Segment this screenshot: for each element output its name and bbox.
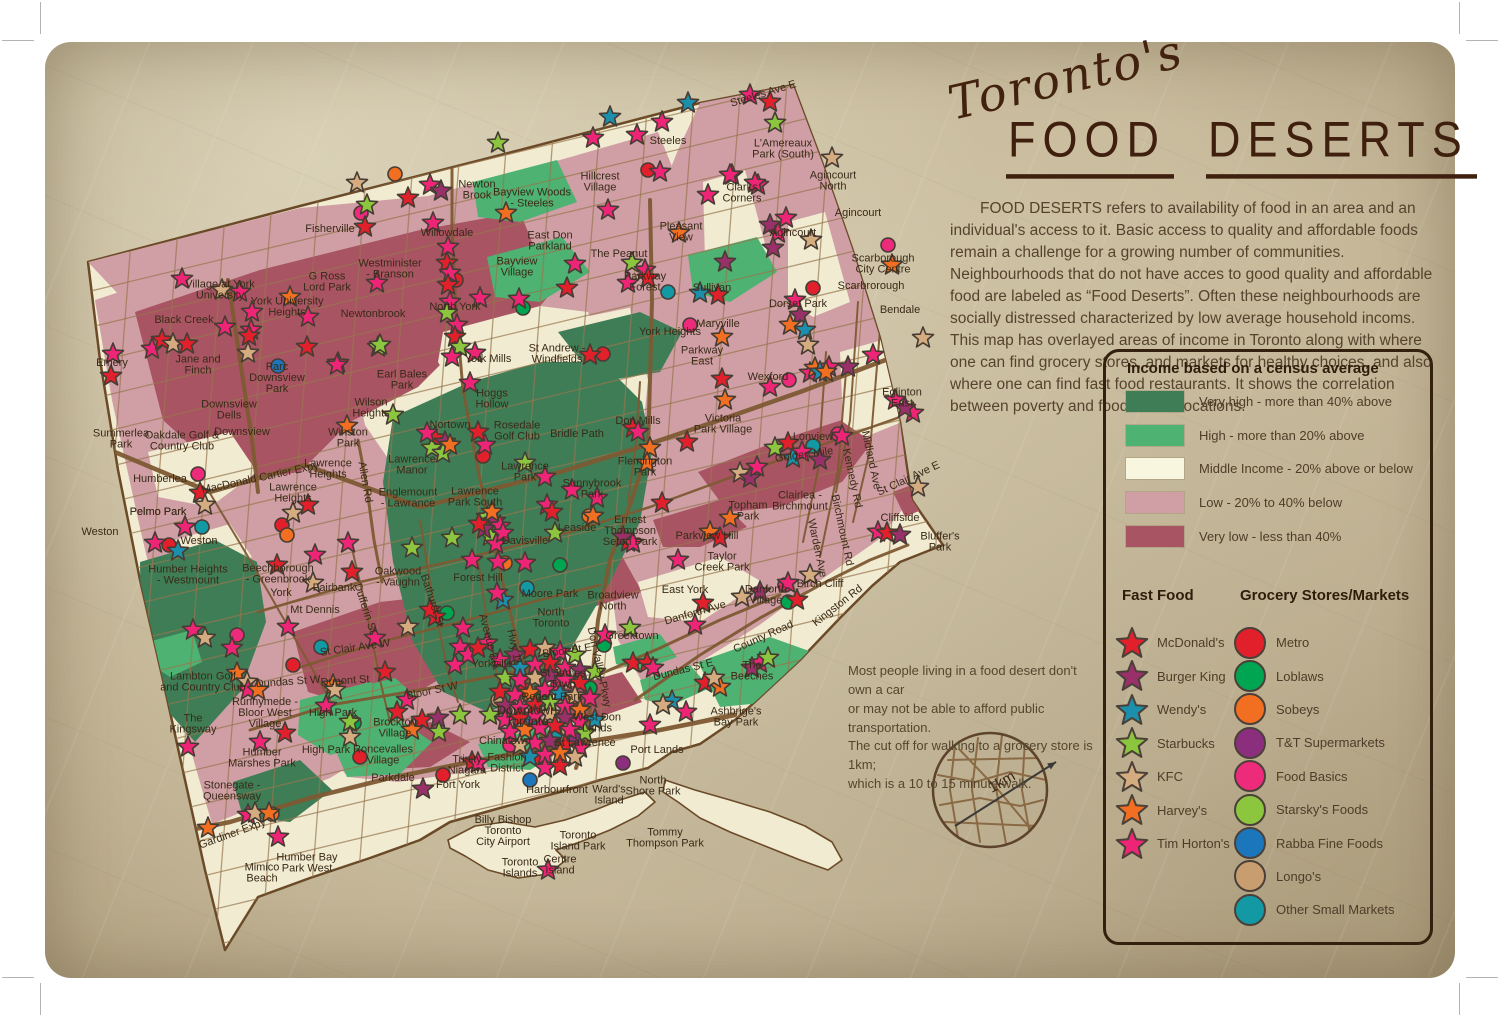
map-label: Lonview — [793, 431, 833, 443]
map-label: Lambton Golfand Country Club — [160, 671, 246, 694]
map-label: G RossLord Park — [303, 271, 351, 294]
income-legend-label: Very low - less than 40% — [1199, 529, 1341, 544]
map-label: Parkview Hill — [676, 530, 739, 542]
map-label: High Park — [302, 744, 351, 756]
income-color-swatch — [1126, 391, 1184, 412]
rabba-circle-icon — [1231, 826, 1269, 860]
map-label: Dorset Park — [769, 298, 828, 310]
grocery-legend-label: Rabba Fine Foods — [1276, 836, 1383, 851]
income-legend-item: Middle Income - 20% above or below — [1126, 452, 1413, 486]
map-label: ScarboroughCity Centre — [852, 253, 915, 276]
map-label: Oakdale Golf &Country Club — [145, 430, 220, 453]
map-label: North York — [429, 301, 481, 313]
map-label: Willowdale — [421, 227, 474, 239]
lob-circle-icon — [1231, 659, 1269, 693]
grocery-marker-sob — [388, 167, 402, 181]
fb-circle-icon — [1231, 759, 1269, 793]
map-label: Wexford — [748, 371, 789, 383]
income-color-swatch — [1126, 458, 1184, 479]
grocery-marker-osm — [661, 285, 675, 299]
fast-food-marker-kfc — [822, 147, 843, 167]
map-label: Maryville — [696, 318, 739, 330]
map-label: Black Creek — [154, 314, 214, 326]
map-label: MimicoBeach — [245, 862, 280, 885]
fast-food-legend-item: Wendy's — [1112, 693, 1230, 727]
map-label: Fisherville — [305, 223, 355, 235]
grocery-legend-label: T&T Supermarkets — [1276, 735, 1385, 750]
map-label: Fairbank — [313, 582, 356, 594]
grocery-legend-title: Grocery Stores/Markets — [1240, 587, 1409, 604]
grocery-legend-label: Sobeys — [1276, 702, 1319, 717]
map-label: WilsonHeights — [352, 397, 390, 420]
grocery-legend-item: Rabba Fine Foods — [1231, 826, 1394, 859]
map-label: RosedaleGolf Club — [494, 420, 540, 443]
grocery-marker-lob — [553, 558, 567, 572]
income-color-swatch — [1126, 425, 1184, 446]
th-star-icon — [1112, 827, 1152, 861]
poster-page: Steeles Ave ESteelesL'AmereauxPark (Sout… — [0, 0, 1500, 1017]
grocery-legend-item: Longo's — [1231, 860, 1394, 893]
income-legend-label: Middle Income - 20% above or below — [1199, 461, 1413, 476]
map-label: NewtonBrook — [458, 179, 495, 202]
map-label: Stonegate -Queensway — [203, 780, 262, 803]
map-label: Newtonbrook — [341, 308, 406, 320]
map-label: Oakwood- Vaughn — [375, 566, 421, 589]
income-legend: Very high - more than 40% aboveHigh - mo… — [1126, 385, 1413, 553]
map-label: High Park — [309, 707, 358, 719]
map-label: East York — [662, 584, 709, 596]
sb-star-icon — [1112, 726, 1152, 760]
map-label: TorontoIslands — [502, 857, 539, 880]
map-label: HillcrestVillage — [580, 171, 619, 194]
osm-circle-icon — [1231, 893, 1269, 927]
title-word-food: FOOD — [1006, 110, 1174, 178]
bk-star-icon — [1112, 659, 1152, 693]
income-legend-item: Low - 20% to 40% below — [1126, 486, 1413, 520]
map-label: Weston — [180, 535, 217, 547]
sf-circle-icon — [1231, 793, 1269, 827]
map-label: ClarksCorners — [722, 182, 762, 205]
grocery-legend-item: T&T Supermarkets — [1231, 726, 1394, 759]
map-label: Clairlea -Birchmount — [772, 490, 828, 513]
map-label: Ashbrige'sBay Park — [710, 706, 762, 729]
map-label: Harbourfront — [526, 784, 588, 796]
map-label: LawrencePark South — [448, 486, 502, 509]
mc-star-icon — [1112, 626, 1152, 660]
fast-food-legend-item: Harvey's — [1112, 794, 1230, 828]
fast-food-marker-sb — [488, 132, 509, 152]
map-label: Steeles — [650, 135, 687, 147]
grocery-legend-label: Starsky's Foods — [1276, 802, 1368, 817]
map-label: Humber BayPark West — [276, 852, 338, 875]
fast-food-marker-kfc — [913, 327, 934, 347]
grocery-marker-fb — [191, 467, 205, 481]
grocery-marker-osm — [195, 520, 209, 534]
grocery-legend-item: Loblaws — [1231, 659, 1394, 692]
map-label: TommyThompson Park — [626, 827, 704, 850]
map-label: Downsview — [214, 426, 270, 438]
fast-food-marker-wd — [600, 106, 621, 126]
map-label: LawrenceHeights — [269, 482, 317, 505]
grocery-legend-item: Starsky's Foods — [1231, 793, 1394, 826]
grocery-legend-label: Food Basics — [1276, 769, 1348, 784]
map-label: Humberlea — [133, 473, 188, 485]
fast-food-legend-item: Starbucks — [1112, 727, 1230, 761]
fast-food-legend-label: Tim Horton's — [1157, 836, 1230, 851]
fast-food-legend-item: McDonald's — [1112, 626, 1230, 660]
income-color-swatch — [1126, 492, 1184, 513]
grocery-legend-item: Metro — [1231, 626, 1394, 659]
map-label: BayviewVillage — [497, 256, 538, 279]
fast-food-legend-item: Burger King — [1112, 660, 1230, 694]
map-label: NorthShore Park — [625, 775, 681, 798]
map-label: Agincourt — [835, 207, 881, 219]
map-label: Emery — [96, 357, 128, 369]
map-label: Fort York — [436, 779, 481, 791]
map-label: TrinityNiagara — [448, 754, 487, 777]
fast-food-legend-label: Burger King — [1157, 669, 1226, 684]
fast-food-legend-item: KFC — [1112, 760, 1230, 794]
grocery-legend-label: Longo's — [1276, 869, 1321, 884]
map-label: Scarbrorough — [838, 280, 905, 292]
grocery-marker-fb — [881, 238, 895, 252]
map-label: Port Lands — [630, 744, 684, 756]
map-label: DowntownToronto — [497, 703, 558, 729]
walking-distance-note: Most people living in a food desert don'… — [848, 662, 1100, 794]
map-label: York Heights — [639, 326, 701, 338]
map-label: Ward'sIsland — [592, 784, 626, 807]
grocery-legend-label: Metro — [1276, 635, 1309, 650]
map-label: NorthToronto — [533, 607, 570, 630]
fast-food-legend: McDonald'sBurger KingWendy'sStarbucksKFC… — [1112, 626, 1230, 861]
income-color-swatch — [1126, 526, 1184, 547]
map-label: HoggsHollow — [475, 388, 508, 411]
map-label: DanforthVillage — [745, 584, 787, 607]
map-label: Weston — [81, 526, 118, 538]
fast-food-legend-label: Starbucks — [1157, 736, 1215, 751]
fast-food-legend-item: Tim Horton's — [1112, 827, 1230, 861]
kfc-star-icon — [1112, 760, 1152, 794]
hv-star-icon — [1112, 793, 1152, 827]
map-label: FashionDistrict — [487, 752, 526, 775]
fast-food-legend-label: KFC — [1157, 769, 1183, 784]
fast-food-legend-title: Fast Food — [1122, 587, 1194, 604]
map-label: L'AmereauxPark (South) — [752, 138, 814, 161]
map-label: Cliffside — [881, 512, 920, 524]
income-legend-label: Very high - more than 40% above — [1199, 394, 1392, 409]
grocery-legend: MetroLoblawsSobeysT&T SupermarketsFood B… — [1231, 626, 1394, 927]
map-label: East DonParkland — [527, 230, 572, 253]
wd-star-icon — [1112, 693, 1152, 727]
map-label: Westminister- Branson — [358, 258, 422, 281]
title-word-deserts: DESERTS — [1206, 110, 1477, 178]
map-label: Nortown — [430, 419, 471, 431]
map-label: Davisville — [502, 535, 548, 547]
income-legend-item: Very low - less than 40% — [1126, 519, 1413, 553]
map-label: ParkwayForest — [624, 271, 667, 294]
grocery-legend-item: Food Basics — [1231, 760, 1394, 793]
map-label: Humber Heights- Westmount — [148, 564, 228, 587]
map-label: Leaside — [558, 522, 597, 534]
page-title: FOODDESERTS — [1006, 114, 1477, 175]
fast-food-legend-label: Wendy's — [1157, 702, 1206, 717]
income-legend-title: Income based on a census average — [1127, 360, 1379, 377]
map-label: Sullivan — [693, 282, 732, 294]
map-label: Bendale — [880, 304, 920, 316]
map-label: York Mills — [465, 353, 512, 365]
grocery-marker-metro — [806, 281, 820, 295]
map-label: BrocktonVillage — [373, 717, 416, 740]
map-label: Mt Dennis — [290, 604, 340, 616]
grocery-legend-label: Loblaws — [1276, 669, 1324, 684]
tnt-circle-icon — [1231, 726, 1269, 760]
map-label: Don Mills — [615, 415, 661, 427]
map-label: Moore Park — [522, 588, 579, 600]
grocery-marker-sob — [280, 528, 294, 542]
sob-circle-icon — [1231, 692, 1269, 726]
grocery-marker-metro — [286, 658, 300, 672]
island — [663, 780, 842, 870]
fast-food-legend-label: Harvey's — [1157, 803, 1207, 818]
map-label: Beechborough- Greenbrook — [242, 563, 314, 586]
map-label: York — [270, 587, 292, 599]
longos-circle-icon — [1231, 859, 1269, 893]
map-label: Birch Cliff — [797, 578, 845, 590]
income-legend-item: Very high - more than 40% above — [1126, 385, 1413, 419]
grocery-legend-item: Other Small Markets — [1231, 893, 1394, 926]
metro-circle-icon — [1231, 626, 1269, 660]
grocery-marker-tnt — [616, 756, 630, 770]
map-label: St Lawrence — [554, 737, 615, 749]
map-label: Parkdale — [371, 772, 414, 784]
map-label: Chinatown — [479, 735, 531, 747]
map-label: Englemount- Lawrance — [379, 487, 438, 510]
map-label: St Andrew -Windfields — [529, 343, 586, 366]
map-label: Bridle Path — [550, 428, 604, 440]
income-legend-label: High - more than 20% above — [1199, 428, 1364, 443]
map-label: The Peanut — [591, 248, 648, 260]
map-label: Pelmo Park — [130, 506, 187, 518]
map-label: Forest Hill — [453, 572, 503, 584]
map-label: Regent Park — [521, 691, 583, 703]
grocery-legend-item: Sobeys — [1231, 693, 1394, 726]
income-legend-label: Low - 20% to 40% below — [1199, 495, 1342, 510]
map-label: Greektown — [605, 630, 658, 642]
income-legend-item: High - more than 20% above — [1126, 419, 1413, 453]
map-label: CentreIsland — [543, 854, 576, 877]
map-label: Agincourt — [770, 227, 816, 239]
fast-food-legend-label: McDonald's — [1157, 635, 1225, 650]
grocery-legend-label: Other Small Markets — [1276, 902, 1394, 917]
